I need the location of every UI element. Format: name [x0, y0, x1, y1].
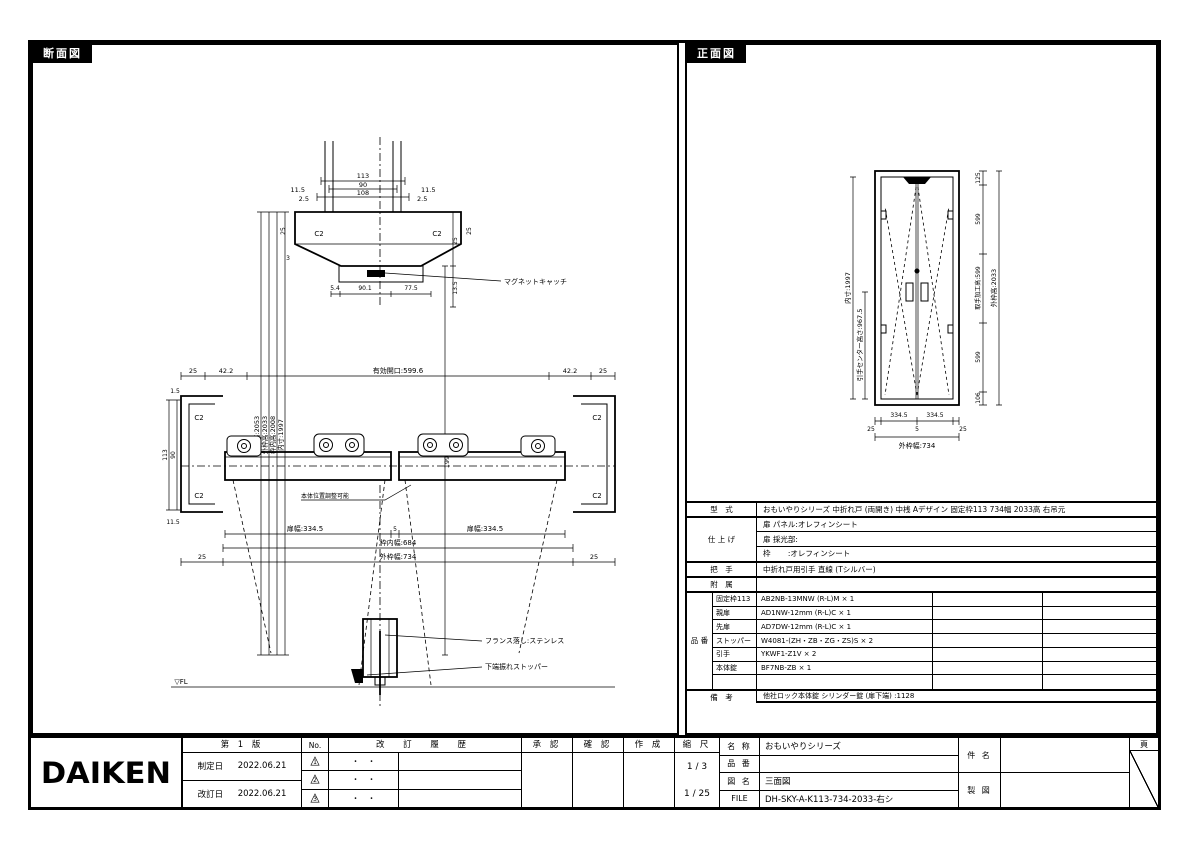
section-drawing: 113 90 108 11.5 11.5 2.5 2.5 C2 C2 25 25… [33, 45, 677, 733]
dim-25-right: 25 [452, 237, 459, 245]
title-block: DAIKEN 第 1 版 制定日 2022.06.21 改訂日 2022.06.… [31, 735, 1158, 807]
dim-90-jamb: 90 [170, 451, 177, 459]
section-view-panel: 113 90 108 11.5 11.5 2.5 2.5 C2 C2 25 25… [31, 43, 679, 735]
edition-header: 第 1 版 [183, 738, 301, 753]
part-row-lock: 本体錠 BF7NB-ZB × 1 [713, 662, 1156, 676]
vertical-dims-left: 開口高:2053 外枠高:2033 枠内高:2008 内寸:1997 [252, 212, 289, 655]
part-extra-1 [933, 607, 1043, 620]
dim-113-jamb: 113 [162, 449, 169, 461]
dim-handle-center-height: 引手センター高さ:967.5 [855, 309, 864, 382]
revision-no-column: No. △ 1 △ 2 △ 3 [302, 738, 329, 807]
dim-leaf-width-left: 扉幅:334.5 [287, 524, 323, 533]
part-name: 引手 [713, 648, 757, 661]
revision-history-row: ・ ・ [329, 790, 521, 807]
spec-finish-frame: 枠 :オレフィンシート [757, 547, 1156, 561]
head-top-dims: 113 90 108 11.5 11.5 2.5 2.5 [291, 172, 436, 203]
part-code [757, 675, 933, 689]
part-extra-2 [1043, 620, 1156, 633]
dim-outer-width: 外枠幅:734 [380, 552, 417, 561]
spec-handle-value: 中折れ戸用引手 直線 (Tシルバー) [757, 563, 1156, 576]
part-name: 先扉 [713, 620, 757, 633]
spec-group-parts: 品 番 固定枠113 AB2NB-13MNW (R-L)M × 1 親扉 AD1… [687, 593, 1156, 691]
series-name-label: 名 称 [720, 738, 760, 755]
chamfer-c2-top-right: C2 [432, 230, 441, 238]
triangle-number: 1 [309, 759, 322, 766]
create-column: 作 成 [624, 738, 675, 807]
dim-25-mid-left: 25 [189, 367, 197, 375]
part-code: AD7DW-12mm (R-L)C × 1 [757, 620, 933, 633]
page-diagonal [1130, 751, 1158, 807]
floor-level-label: ▽FL [174, 678, 187, 686]
check-header: 確 認 [573, 738, 623, 753]
head-frame: C2 C2 25 25 3 [280, 212, 473, 266]
dim-25-bottom-left: 25 [198, 553, 206, 561]
sill-detail: ▽FL フランス落し:ステンレス 下端振れストッパー [171, 485, 615, 707]
part-extra-2 [1043, 662, 1156, 675]
spec-row-model: 型 式 おもいやりシリーズ 中折れ戸 (両開き) 中桟 Aデザイン 固定枠113… [687, 503, 1156, 518]
revision-triangle-icon: △ 2 [309, 773, 322, 786]
swing-projections [233, 480, 557, 685]
scale-value-1: 1 / 3 [675, 753, 719, 780]
front-bottom-dims: 25 334.5 5 334.5 25 外枠幅:734 [867, 412, 967, 450]
dim-5-4: 5.4 [330, 285, 340, 292]
door-handle-right [921, 283, 928, 301]
dim-front-outer-height: 外枠高:2033 [989, 269, 998, 307]
triangle-number: 2 [309, 777, 322, 784]
part-name: 本体錠 [713, 662, 757, 675]
front-left-dims: 内寸:1997 引手センター高さ:967.5 [843, 177, 868, 399]
part-extra-1 [933, 634, 1043, 647]
revision-history-row: ・ ・ [329, 753, 521, 771]
revision-description [399, 790, 521, 807]
front-view-panel: 内寸:1997 引手センター高さ:967.5 125 599 取手加工高:599… [685, 43, 1158, 735]
item-number-value [760, 756, 958, 773]
triangle-number: 3 [309, 796, 322, 803]
dim-11-5-right: 11.5 [421, 186, 435, 194]
create-header: 作 成 [624, 738, 674, 753]
check-column: 確 認 [573, 738, 624, 807]
part-row-lead-leaf: 先扉 AD7DW-12mm (R-L)C × 1 [713, 620, 1156, 634]
spec-model-label: 型 式 [687, 503, 757, 516]
edition-block: 第 1 版 制定日 2022.06.21 改訂日 2022.06.21 [183, 738, 302, 807]
dim-effective-opening: 有効開口:599.6 [373, 366, 424, 375]
mid-dims: 25 42.2 有効開口:599.6 42.2 25 [181, 366, 615, 380]
scale-value-2: 1 / 25 [675, 780, 719, 807]
door-handle-left [906, 283, 913, 301]
part-code: AD1NW-12mm (R-L)C × 1 [757, 607, 933, 620]
door-elevation [875, 171, 959, 405]
spec-group-remarks: 備 考 他社ロック本体錠 シリンダー錠 (扉下端) :1128 [687, 691, 1156, 703]
part-row-main-leaf: 親扉 AD1NW-12mm (R-L)C × 1 [713, 607, 1156, 621]
dim-inner-frame-height: 枠内高:2008 [268, 416, 277, 454]
part-row-pull: 引手 YKWF1-Z1V × 2 [713, 648, 1156, 662]
spec-accessory-value [757, 578, 1156, 591]
dim-113: 113 [357, 172, 369, 180]
dim-gap-5: 5 [393, 526, 397, 533]
series-name-value: おもいやりシリーズ [760, 738, 958, 755]
part-extra-2 [1043, 634, 1156, 647]
approval-cell [522, 753, 572, 807]
series-name-row: 名 称 おもいやりシリーズ [720, 738, 958, 756]
approval-header: 承 認 [522, 738, 572, 753]
scale-header: 縮 尺 [675, 738, 719, 753]
part-extra-1 [933, 593, 1043, 606]
draft-value [1001, 773, 1129, 807]
established-date: 2022.06.21 [238, 761, 287, 771]
draft-label: 製 図 [959, 773, 1001, 807]
part-row-empty [713, 675, 1156, 689]
subject-row: 件 名 [959, 738, 1129, 773]
remark-row [757, 702, 1156, 703]
dim-1-5: 1.5 [170, 388, 180, 395]
dim-90: 90 [359, 181, 367, 189]
revision-triangle-icon: △ 1 [309, 755, 322, 768]
spec-model-value: おもいやりシリーズ 中折れ戸 (両開き) 中桟 Aデザイン 固定枠113 734… [757, 503, 1156, 516]
dim-25-mid-right: 25 [599, 367, 607, 375]
revised-date: 2022.06.21 [238, 789, 287, 799]
remark-row: 他社ロック本体錠 シリンダー錠 (扉下端) :1128 [757, 691, 1156, 702]
drawing-meta-block: 名 称 おもいやりシリーズ 品 番 図 名 三面図 FILE DH-SKY-A-… [720, 738, 959, 807]
established-label: 制定日 [198, 760, 224, 772]
draft-row: 製 図 [959, 773, 1129, 807]
dim-77-5: 77.5 [404, 285, 418, 292]
dim-front-leaf-height: 内寸:1997 [843, 272, 852, 304]
part-extra-2 [1043, 675, 1156, 689]
chamfer-c2-top-left: C2 [314, 230, 323, 238]
revision-date: ・ ・ [329, 790, 399, 807]
drawing-sheet: 113 90 108 11.5 11.5 2.5 2.5 C2 C2 25 25… [28, 40, 1161, 810]
magnet-catch-label: マグネットキャッチ [504, 277, 567, 286]
established-row: 制定日 2022.06.21 [183, 753, 301, 781]
spec-group-finish: 仕 上 げ 扉 パネル:オレフィンシート 扉 採光部: 枠 :オレフィンシート [687, 518, 1156, 563]
revision-description [399, 771, 521, 788]
dim-42-2-right: 42.2 [563, 367, 577, 375]
part-extra-2 [1043, 593, 1156, 606]
dim-front-25-left: 25 [867, 426, 875, 433]
drawing-name-label: 図 名 [720, 773, 760, 790]
dim-108: 108 [357, 189, 369, 197]
part-extra-1 [933, 648, 1043, 661]
spec-finish-light: 扉 採光部: [757, 532, 1156, 546]
french-bolt-label: フランス落し:ステンレス [485, 636, 564, 645]
revised-label: 改訂日 [198, 788, 224, 800]
scale-column: 縮 尺 1 / 3 1 / 25 [675, 738, 720, 807]
lock-indicator [915, 269, 920, 274]
dim-2-5-right: 2.5 [417, 195, 427, 203]
dim-2-5-left: 2.5 [299, 195, 309, 203]
approval-column: 承 認 [522, 738, 573, 807]
dim-599-bottom: 599 [975, 351, 982, 363]
dim-11-5-jamb: 11.5 [166, 519, 180, 526]
revision-description [399, 753, 521, 770]
dim-25-bottom-right: 25 [590, 553, 598, 561]
page-header: 頁 [1130, 738, 1158, 751]
spec-row-accessory: 附 属 [687, 578, 1156, 593]
subject-value [1001, 738, 1129, 772]
section-view-title: 断面図 [33, 45, 92, 63]
chamfer-c2-mid-right: C2 [592, 414, 601, 422]
dim-599-top: 599 [975, 213, 982, 225]
adjust-note-label: 本体位置調整可能 [301, 492, 349, 500]
revision-triangle-icon: △ 3 [309, 792, 322, 805]
spec-finish-panel: 扉 パネル:オレフィンシート [757, 518, 1156, 532]
part-extra-1 [933, 662, 1043, 675]
bottom-dims: 扉幅:334.5 5 扉幅:334.5 枠内幅:684 25 外枠幅:734 2… [181, 524, 615, 566]
adjust-note: 本体位置調整可能 [301, 485, 411, 500]
jamb-small-dims: 1.5 113 90 11.5 [162, 388, 180, 526]
revision-history-row: ・ ・ [329, 771, 521, 789]
part-code: BF7NB-ZB × 1 [757, 662, 933, 675]
page-column: 頁 [1130, 738, 1158, 807]
daiken-logo: DAIKEN [31, 738, 183, 807]
dim-106: 106 [975, 392, 982, 404]
spec-parts-label: 品 番 [687, 593, 713, 689]
spec-accessory-label: 附 属 [687, 578, 757, 591]
dim-3: 3 [286, 255, 290, 262]
check-cell [573, 753, 623, 807]
revision-mark-row: △ 3 [302, 790, 328, 807]
dim-handle-work-height: 取手加工高:599 [974, 266, 982, 310]
revision-mark-row: △ 1 [302, 753, 328, 771]
front-view-title: 正面図 [687, 45, 746, 63]
dim-front-334-5-left: 334.5 [890, 412, 907, 419]
revision-date: ・ ・ [329, 771, 399, 788]
part-code: W4081-(ZH・ZB・ZG・ZS)S × 2 [757, 634, 933, 647]
chamfer-c2-bottom-right: C2 [592, 492, 601, 500]
spec-table: 型 式 おもいやりシリーズ 中折れ戸 (両開き) 中桟 Aデザイン 固定枠113… [687, 501, 1156, 733]
project-block: 件 名 製 図 [959, 738, 1130, 807]
dim-front-334-5-right: 334.5 [926, 412, 943, 419]
dim-front-outer-width: 外枠幅:734 [899, 441, 936, 450]
door-top-detail: 5.4 90.1 77.5 マグネットキャッチ [330, 266, 567, 297]
bottom-stopper-label: 下端振れストッパー [485, 662, 548, 671]
part-extra-2 [1043, 648, 1156, 661]
item-number-row: 品 番 [720, 756, 958, 774]
dim-leaf-width-right: 扉幅:334.5 [467, 524, 503, 533]
dim-leaf-height: 内寸:1997 [276, 419, 285, 451]
drawing-name-row: 図 名 三面図 [720, 773, 958, 791]
dim-125: 125 [975, 172, 982, 184]
part-extra-2 [1043, 607, 1156, 620]
dim-25-head-right: 25 [466, 227, 473, 235]
file-value: DH-SKY-A-K113-734-2033-右シ [760, 791, 958, 808]
chamfer-c2-bottom-left: C2 [194, 492, 203, 500]
revision-mark-row: △ 2 [302, 771, 328, 789]
dim-42-2-left: 42.2 [219, 367, 233, 375]
dim-25-head-left: 25 [280, 227, 287, 235]
dim-13-5: 13.5 [452, 281, 459, 295]
revision-history-block: 改 訂 履 歴 ・ ・ ・ ・ ・ ・ [329, 738, 522, 807]
part-name: 親扉 [713, 607, 757, 620]
spec-remarks-label: 備 考 [687, 691, 757, 703]
part-extra-1 [933, 675, 1043, 689]
no-header: No. [302, 738, 328, 753]
drawing-name-value: 三面図 [760, 773, 958, 790]
dim-11-5-left: 11.5 [291, 186, 305, 194]
dim-inner-width: 枠内幅:684 [380, 538, 417, 547]
part-extra-1 [933, 620, 1043, 633]
revision-history-header: 改 訂 履 歴 [329, 738, 521, 753]
part-name: ストッパー [713, 634, 757, 647]
spec-handle-label: 把 手 [687, 563, 757, 576]
part-name [713, 675, 757, 689]
subject-label: 件 名 [959, 738, 1001, 772]
create-cell [624, 753, 674, 807]
chamfer-c2-mid-left: C2 [194, 414, 203, 422]
part-row-frame: 固定枠113 AB2NB-13MNW (R-L)M × 1 [713, 593, 1156, 607]
file-label: FILE [720, 791, 760, 808]
revised-row: 改訂日 2022.06.21 [183, 781, 301, 808]
revision-date: ・ ・ [329, 753, 399, 770]
front-drawing: 内寸:1997 引手センター高さ:967.5 125 599 取手加工高:599… [687, 45, 1156, 501]
spec-finish-label: 仕 上 げ [687, 518, 757, 561]
dim-90-1: 90.1 [358, 285, 372, 292]
item-number-label: 品 番 [720, 756, 760, 773]
part-row-stopper: ストッパー W4081-(ZH・ZB・ZG・ZS)S × 2 [713, 634, 1156, 648]
dim-front-5: 5 [915, 426, 919, 433]
part-code: AB2NB-13MNW (R-L)M × 1 [757, 593, 933, 606]
dim-front-25-right: 25 [959, 426, 967, 433]
part-name: 固定枠113 [713, 593, 757, 606]
daiken-logo-text: DAIKEN [41, 755, 171, 790]
part-code: YKWF1-Z1V × 2 [757, 648, 933, 661]
file-row: FILE DH-SKY-A-K113-734-2033-右シ [720, 791, 958, 808]
front-right-dims: 125 599 取手加工高:599 599 106 外枠高:2033 [974, 171, 1002, 405]
spec-row-handle: 把 手 中折れ戸用引手 直線 (Tシルバー) [687, 563, 1156, 578]
